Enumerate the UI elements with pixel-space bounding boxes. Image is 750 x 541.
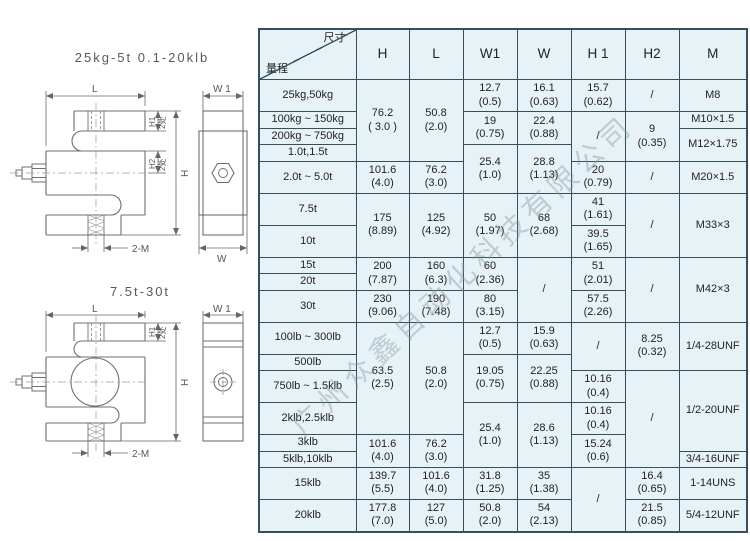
dim-cell: 54 (2.13) xyxy=(517,499,571,532)
dim-cell: / xyxy=(571,468,625,532)
dim-cell: 41 (1.61) xyxy=(571,193,625,225)
column-header: L xyxy=(409,29,463,80)
column-header: H xyxy=(356,29,409,80)
dim-cell: 25.4 (1.0) xyxy=(463,403,517,468)
dim-cell: 1-14UNS xyxy=(679,468,747,500)
dim-cell: 127 (5.0) xyxy=(409,499,463,532)
dimension-table-panel: 尺寸 量程 HLW1WH 1H2M 25kg,50kg76.2 ( 3.0 )5… xyxy=(258,28,746,533)
dim-cell: 3/4-16UNF xyxy=(679,451,747,468)
dim-label-H1: H1 xyxy=(148,116,157,127)
range-cell: 20t xyxy=(259,274,356,291)
range-cell: 7.5t xyxy=(259,193,356,225)
dim-cell: 68 (2.68) xyxy=(517,193,571,257)
dim-cell: 177.8 (7.0) xyxy=(356,499,409,532)
dim-cell: 15.24 (0.6) xyxy=(571,434,625,467)
dim-cell: 50.8 (2.0) xyxy=(463,499,517,532)
corner-label-range: 量程 xyxy=(266,63,288,76)
range-cell: 15klb xyxy=(259,468,356,500)
dim-cell: 101.6 (4.0) xyxy=(356,161,409,193)
dimension-table: 尺寸 量程 HLW1WH 1H2M 25kg,50kg76.2 ( 3.0 )5… xyxy=(258,28,748,533)
dim-cell: 28.8 (1.13) xyxy=(517,145,571,193)
dim-cell: 22.25 (0.88) xyxy=(517,354,571,402)
table-row: 100kg ~ 150kg19 (0.75)22.4 (0.88)/9 (0.3… xyxy=(259,112,747,129)
dim-cell: / xyxy=(625,80,679,112)
column-header: W xyxy=(517,29,571,80)
dim-label-H2: H2 xyxy=(148,158,157,169)
drawing-title-small-range: 25kg-5t 0.1-20klb xyxy=(52,50,232,65)
dim-cell: 16.4 (0.65) xyxy=(625,468,679,500)
dim-cell: M12×1.75 xyxy=(679,128,747,161)
range-cell: 5klb,10klb xyxy=(259,451,356,468)
dim-cell: 39.5 (1.65) xyxy=(571,225,625,257)
dim-cell: 1/4-28UNF xyxy=(679,322,747,370)
column-header: H 1 xyxy=(571,29,625,80)
dim-cell: 50 (1.97) xyxy=(463,193,517,257)
dim-cell: 101.6 (4.0) xyxy=(409,468,463,500)
centerlines xyxy=(10,315,149,451)
dim-cell: 28.6 (1.13) xyxy=(517,403,571,468)
dim-cell: / xyxy=(517,257,571,322)
dim-cell: 50.8 (2.0) xyxy=(409,322,463,434)
dim-cell: 20 (0.79) xyxy=(571,161,625,193)
dim-cell: 12.7 (0.5) xyxy=(463,322,517,354)
dim-cell: 76.2 ( 3.0 ) xyxy=(356,80,409,162)
range-cell: 3klb xyxy=(259,434,356,451)
dim-cell: 76.2 (3.0) xyxy=(409,434,463,467)
dim-cell: 35 (1.38) xyxy=(517,468,571,500)
dim-label-H1: H1 xyxy=(148,326,157,337)
dim-cell: / xyxy=(625,161,679,193)
dim-label-H2-places: 2处 xyxy=(157,159,167,171)
dim-cell: / xyxy=(625,257,679,322)
dim-cell: 5/4-12UNF xyxy=(679,499,747,532)
dim-cell: 19 (0.75) xyxy=(463,112,517,145)
dim-cell: 60 (2.36) xyxy=(463,257,517,290)
column-header: H2 xyxy=(625,29,679,80)
dim-cell: 21.5 (0.85) xyxy=(625,499,679,532)
dim-cell: 200 (7.87) xyxy=(356,257,409,290)
dim-cell: 31.8 (1.25) xyxy=(463,468,517,500)
dim-cell: 10.16 (0.4) xyxy=(571,371,625,403)
table-row: 7.5t175 (8.89)125 (4.92)50 (1.97)68 (2.6… xyxy=(259,193,747,225)
dim-label-L: L xyxy=(92,304,98,315)
dim-cell: 51 (2.01) xyxy=(571,257,625,290)
side-view-outline xyxy=(203,323,243,441)
range-cell: 750lb ~ 1.5klb xyxy=(259,371,356,403)
range-cell: 15t xyxy=(259,257,356,274)
dim-cell: 1/2-20UNF xyxy=(679,371,747,451)
datasheet-page: { "page": {"width": 750, "height": 541, … xyxy=(0,0,750,541)
table-row: 15t200 (7.87)160 (6.3)60 (2.36)/51 (2.01… xyxy=(259,257,747,274)
column-header: M xyxy=(679,29,747,80)
dim-cell: 15.7 (0.62) xyxy=(571,80,625,112)
dim-cell: 9 (0.35) xyxy=(625,112,679,162)
dim-cell: 12.7 (0.5) xyxy=(463,80,517,112)
dim-cell: / xyxy=(571,112,625,162)
corner-header-cell: 尺寸 量程 xyxy=(259,29,356,80)
dim-cell: 22.4 (0.88) xyxy=(517,112,571,145)
dim-cell: 80 (3.15) xyxy=(463,290,517,322)
table-row: 100lb ~ 300lb63.5 (2.5)50.8 (2.0)12.7 (0… xyxy=(259,322,747,354)
dim-label-L: L xyxy=(92,84,98,95)
range-cell: 25kg,50kg xyxy=(259,80,356,112)
dim-cell: / xyxy=(625,193,679,257)
dim-cell: M10×1.5 xyxy=(679,112,747,129)
table-header-row: 尺寸 量程 HLW1WH 1H2M xyxy=(259,29,747,80)
load-cell-drawing-large-range: L W 1 H H1 2处 2-M xyxy=(8,303,258,475)
column-header: W1 xyxy=(463,29,517,80)
table-row: 25kg,50kg76.2 ( 3.0 )50.8 (2.0)12.7 (0.5… xyxy=(259,80,747,112)
table-row: 20klb177.8 (7.0)127 (5.0)50.8 (2.0)54 (2… xyxy=(259,499,747,532)
dim-label-W1: W 1 xyxy=(213,84,231,95)
dim-cell: M33×3 xyxy=(679,193,747,257)
dim-cell: 101.6 (4.0) xyxy=(356,434,409,467)
dim-cell: 19.05 (0.75) xyxy=(463,354,517,402)
load-cell-drawing-small-range: L W 1 H H1 2处 H2 2处 2-M W xyxy=(8,76,258,268)
range-cell: 100lb ~ 300lb xyxy=(259,322,356,354)
dim-cell: 8.25 (0.32) xyxy=(625,322,679,370)
dim-cell: 16.1 (0.63) xyxy=(517,80,571,112)
range-cell: 20klb xyxy=(259,499,356,532)
dim-cell: 15.9 (0.63) xyxy=(517,322,571,354)
dim-label-H: H xyxy=(180,379,191,386)
dim-label-W1: W 1 xyxy=(213,304,231,315)
dim-cell: M42×3 xyxy=(679,257,747,322)
corner-label-dimension: 尺寸 xyxy=(324,32,346,45)
range-cell: 1.0t,1.5t xyxy=(259,145,356,162)
range-cell: 200kg ~ 750kg xyxy=(259,128,356,145)
range-cell: 10t xyxy=(259,225,356,257)
dim-cell: 63.5 (2.5) xyxy=(356,322,409,434)
range-cell: 100kg ~ 150kg xyxy=(259,112,356,129)
dim-cell: 175 (8.89) xyxy=(356,193,409,257)
centerlines xyxy=(10,103,149,244)
dim-cell: 125 (4.92) xyxy=(409,193,463,257)
dim-label-H: H xyxy=(180,170,191,177)
range-cell: 500lb xyxy=(259,354,356,371)
dim-cell: 57.5 (2.26) xyxy=(571,290,625,322)
range-cell: 2klb,2.5klb xyxy=(259,403,356,435)
drawing-title-large-range: 7.5t-30t xyxy=(55,284,225,299)
dim-cell: / xyxy=(571,322,625,370)
dim-label-2M: 2-M xyxy=(132,449,149,460)
dim-label-H1-places: 2处 xyxy=(157,327,167,339)
dim-cell: 139.7 (5.5) xyxy=(356,468,409,500)
dim-cell: 190 (7.48) xyxy=(409,290,463,322)
dim-label-H1-places: 2处 xyxy=(157,117,167,129)
dim-cell: / xyxy=(625,371,679,468)
dim-cell: 10.16 (0.4) xyxy=(571,403,625,435)
dim-cell: M8 xyxy=(679,80,747,112)
dimension-lines xyxy=(46,91,247,254)
table-row: 15klb139.7 (5.5)101.6 (4.0)31.8 (1.25)35… xyxy=(259,468,747,500)
dim-label-2M: 2-M xyxy=(132,244,149,255)
dim-cell: 160 (6.3) xyxy=(409,257,463,290)
dim-cell: 76.2 (3.0) xyxy=(409,161,463,193)
range-cell: 30t xyxy=(259,290,356,322)
range-cell: 2.0t ~ 5.0t xyxy=(259,161,356,193)
dim-cell: 50.8 (2.0) xyxy=(409,80,463,162)
dim-cell: 25.4 (1.0) xyxy=(463,145,517,193)
side-view-outline xyxy=(199,111,247,235)
dim-cell: M20×1.5 xyxy=(679,161,747,193)
dim-label-W: W xyxy=(217,254,227,265)
dim-cell: 230 (9.06) xyxy=(356,290,409,322)
